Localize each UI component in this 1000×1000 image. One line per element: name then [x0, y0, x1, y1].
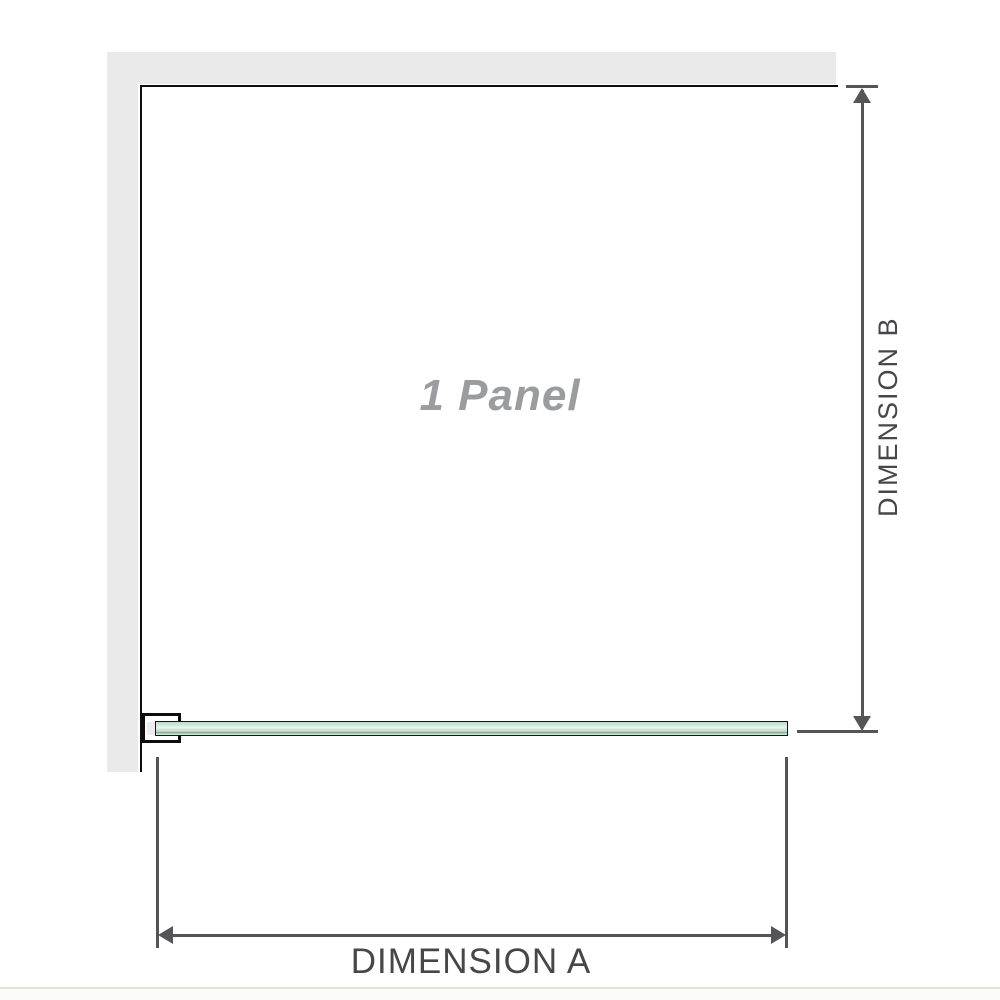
dimension-a-label: DIMENSION A	[351, 944, 591, 979]
arrow-down-icon	[853, 716, 871, 731]
wall-top-bar	[107, 52, 836, 84]
dimension-a-left-tick	[156, 757, 159, 948]
arrow-left-icon	[158, 926, 173, 944]
panel-outline-left	[140, 85, 142, 772]
panel-outline-top	[140, 85, 838, 87]
arrow-right-icon	[771, 926, 786, 944]
wall-left-bar	[107, 52, 138, 772]
arrow-up-icon	[853, 88, 871, 103]
dimension-b-line	[861, 90, 864, 719]
dimension-a-line	[168, 934, 776, 937]
glass-panel-bar	[155, 721, 788, 736]
footer-background	[0, 989, 1000, 1000]
dimension-a-right-tick	[785, 757, 788, 948]
dimension-b-label: DIMENSION B	[874, 317, 902, 517]
panel-count-label: 1 Panel	[419, 374, 580, 418]
